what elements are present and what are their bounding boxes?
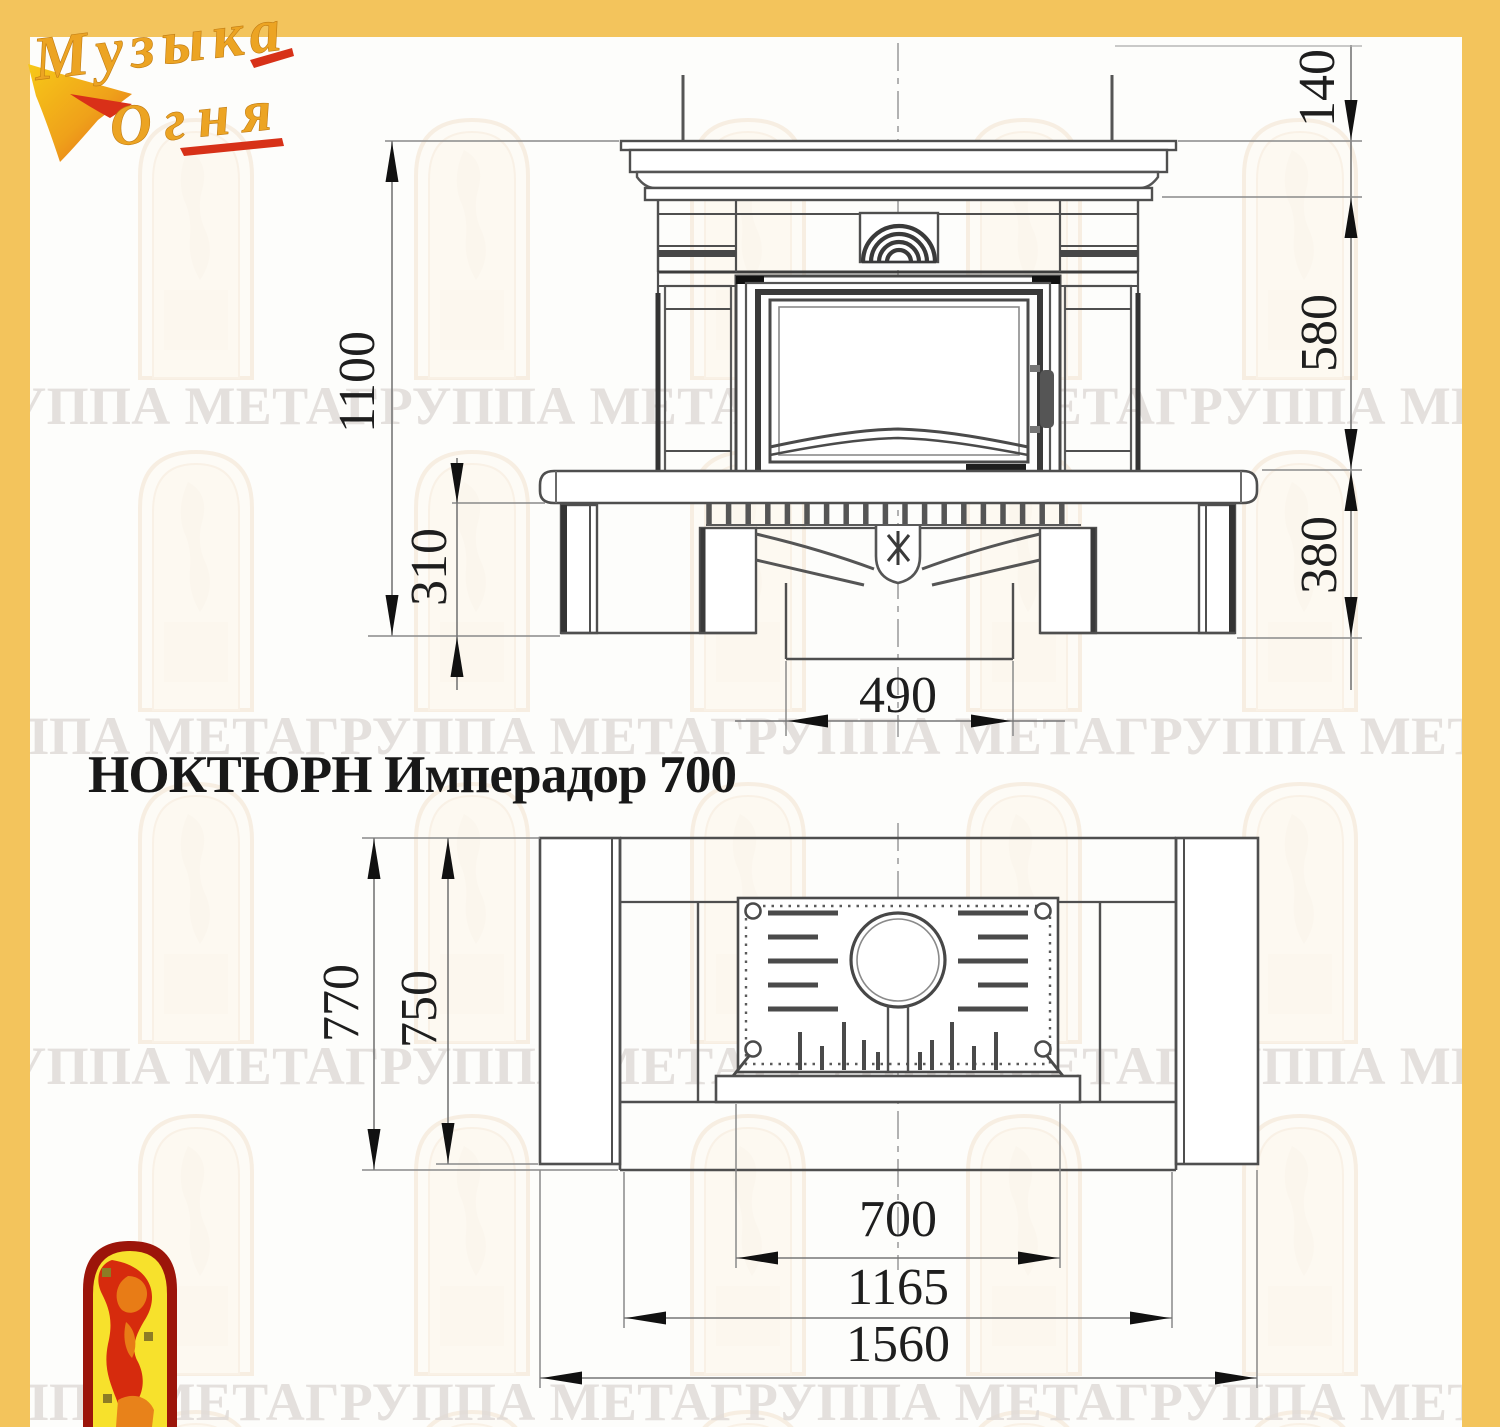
svg-text:1165: 1165 [847, 1259, 949, 1316]
svg-text:700: 700 [859, 1191, 937, 1248]
svg-text:1560: 1560 [846, 1316, 950, 1373]
svg-text:580: 580 [1291, 294, 1348, 372]
svg-text:770: 770 [313, 964, 370, 1042]
svg-text:140: 140 [1289, 49, 1346, 127]
svg-text:НОКТЮРН Имперадор 700: НОКТЮРН Имперадор 700 [88, 746, 737, 804]
svg-text:490: 490 [859, 667, 937, 724]
svg-text:310: 310 [401, 528, 458, 606]
svg-text:1100: 1100 [329, 331, 386, 433]
svg-text:ГРУППА МЕТАГРУППА МЕТАГРУППА М: ГРУППА МЕТАГРУППА МЕТАГРУППА МЕТАГРУППА … [0, 1372, 1500, 1427]
svg-text:750: 750 [391, 970, 448, 1048]
svg-text:380: 380 [1291, 516, 1348, 594]
